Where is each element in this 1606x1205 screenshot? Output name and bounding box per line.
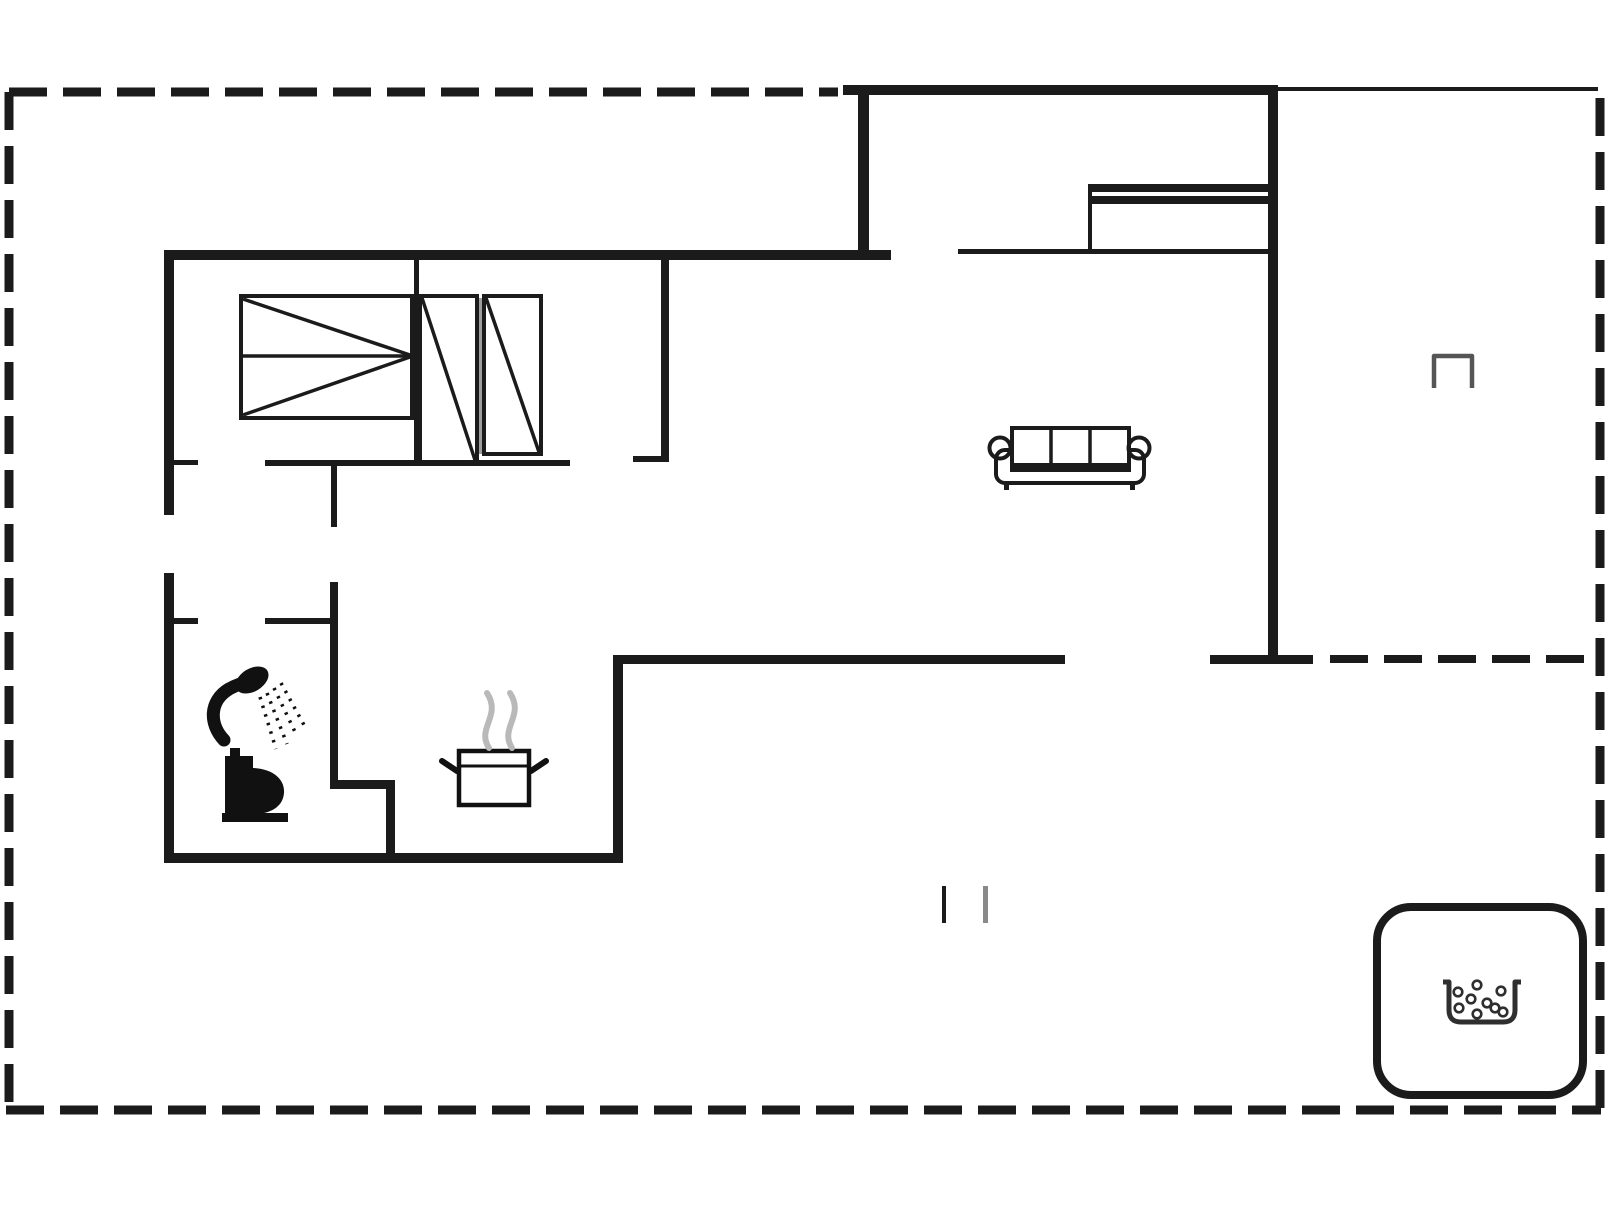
door-jamb-bathroom (164, 618, 198, 624)
pot-handle-left (442, 761, 457, 771)
wall-kitchen-step (613, 655, 623, 863)
toilet-bowl (253, 768, 284, 814)
wall-bedroom-south (265, 460, 570, 466)
wall-top-upper-section (843, 85, 1278, 95)
pot-body (459, 751, 529, 805)
counter-left-edge (1088, 184, 1092, 252)
steam-wisp-left (485, 693, 492, 748)
wall-bath-step-horizontal (330, 780, 395, 789)
wall-left-lower (164, 573, 174, 863)
shower-spray-2 (267, 693, 287, 744)
pot-handle-right (531, 761, 546, 771)
counter-bar-mid (1088, 196, 1273, 204)
terrace-tick-gray (983, 886, 988, 923)
wall-closet-east (661, 260, 669, 458)
wall-left-upper (164, 250, 174, 515)
wall-upper-room-south-thin (958, 249, 1274, 254)
wall-house-right (1268, 85, 1278, 663)
steam-wisp-right (508, 693, 515, 748)
wall-bath-east (330, 582, 338, 782)
toilet-flush-button (230, 748, 240, 756)
terrace-tick-black (942, 886, 946, 923)
sofa-foot-right (1130, 482, 1135, 490)
door-jamb-bedroom (164, 460, 198, 465)
wall-bath-step-vertical (386, 780, 395, 857)
toilet-base (222, 813, 288, 822)
shower-spray-1 (260, 697, 276, 749)
wall-hall-stub (331, 466, 337, 527)
shower-spray-3 (274, 688, 297, 736)
wall-living-bottom-right (1210, 655, 1313, 664)
counter-bar-top (1088, 184, 1273, 192)
floor-plan-svg (0, 0, 1606, 1205)
wardrobe-gap-line (479, 298, 482, 454)
grill-bracket-icon (1434, 356, 1472, 388)
hot-tub (1377, 907, 1583, 1095)
toilet-tank (225, 756, 253, 813)
door-jamb-living (633, 456, 669, 462)
floor-plan-page (0, 0, 1606, 1205)
wall-upper-section-left (858, 85, 869, 260)
roofline-top-right-thin (1278, 87, 1598, 91)
shower-spray-4 (281, 683, 304, 725)
sofa-foot-left (1004, 482, 1009, 490)
wall-living-bottom (613, 655, 1065, 664)
wall-main-top (164, 250, 891, 260)
wall-bath-north (265, 618, 337, 624)
